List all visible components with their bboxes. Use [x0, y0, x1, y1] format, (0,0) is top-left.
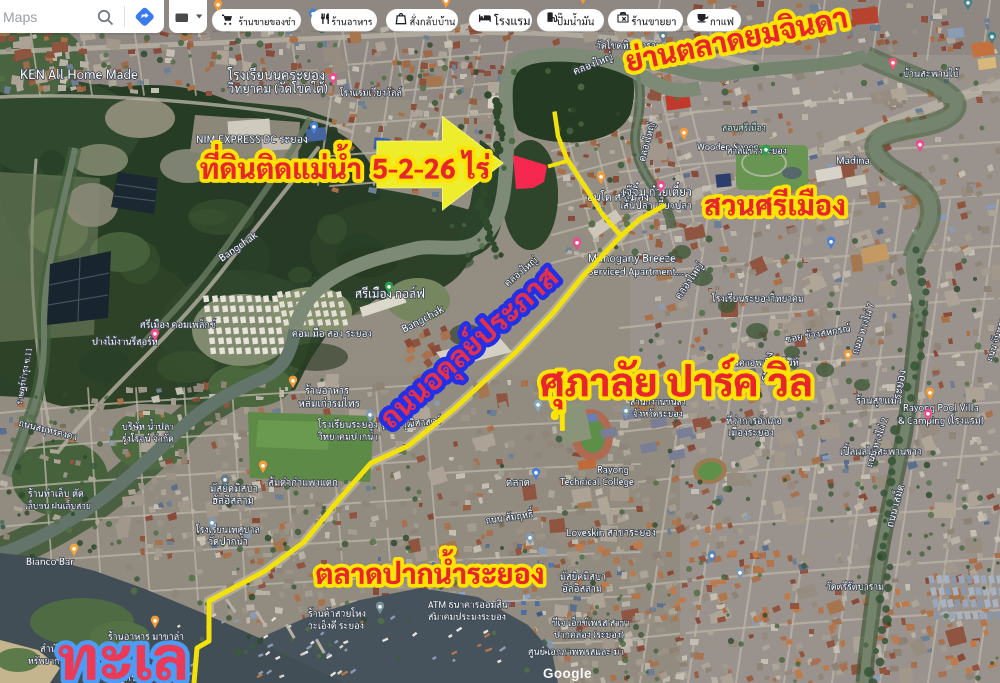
svg-text:Maps: Maps: [3, 9, 37, 25]
svg-text:Google: Google: [543, 666, 592, 681]
